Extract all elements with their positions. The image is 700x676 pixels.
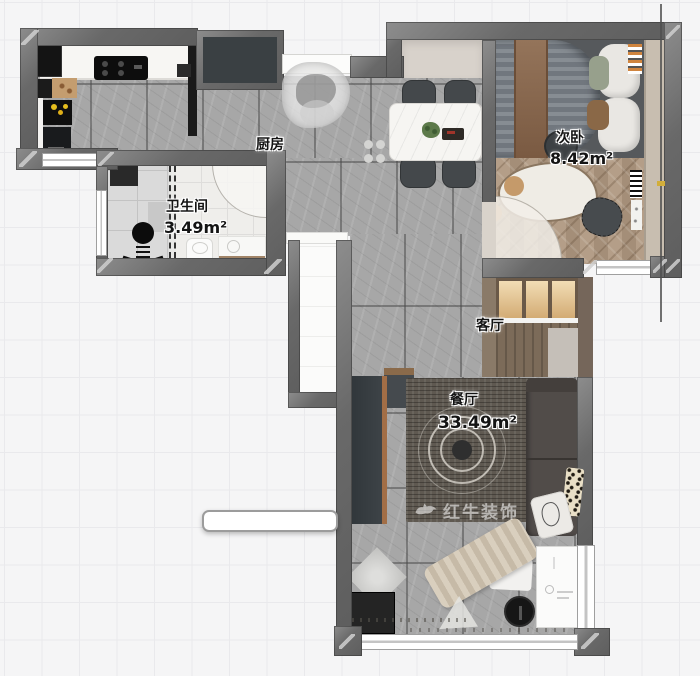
food-item [58,110,63,115]
floor-dot [376,154,385,163]
green-cushion [589,56,609,90]
living-cabinet-right-panel [578,277,593,377]
room-label-bedroom: 次卧 [556,127,584,147]
shoe-cabinet [203,37,277,83]
cutting-board [52,78,77,98]
tv-panel-wood-edge [382,376,387,524]
food-item [51,104,57,110]
floor-dot [364,154,373,163]
room-area-bathroom: 3.49m² [164,218,227,237]
room-label-dining: 餐厅 [450,389,478,409]
serving-tray [442,128,464,140]
wardrobe-deco [630,170,642,198]
kitchen-window [42,153,98,167]
curtain-inner-light [300,100,334,126]
wall [482,40,496,204]
sofa-cushion-seam [526,458,578,460]
balcony-window [358,634,578,650]
tan-stool [504,176,524,196]
floor-dot [364,140,373,149]
corner-hatch-icon [97,258,113,273]
watermark: 红牛装饰 [414,498,519,523]
corner-hatch-icon [21,30,39,45]
washing-machine [536,546,578,628]
burner-icon [102,70,108,76]
burner-icon [102,61,108,67]
corner-hatch-icon [98,152,114,166]
bull-logo-icon [414,500,438,521]
floor-dot [376,140,385,149]
cooktop [94,56,148,80]
sofa-armrest [526,378,578,392]
tv-panel [352,376,382,524]
corner-hatch-icon [581,633,599,649]
burner-icon [118,61,124,67]
bedroom-window [596,260,652,275]
floor-speckles [352,618,472,622]
bed-throw-blanket [514,40,548,158]
washer-detail [553,557,555,569]
washer-knob [545,585,554,594]
pillow-line-art [539,500,562,528]
entry-floor [402,40,482,78]
balcony-side-window [577,545,595,633]
corner-hatch-icon [264,259,282,274]
room-label-kitchen: 厨房 [256,134,284,154]
wall [577,377,593,547]
wall [336,240,352,636]
room-label-bathroom: 卫生间 [166,196,208,216]
brown-cushion [587,100,609,130]
toilet-bowl [192,242,208,254]
floor-plan-canvas: 厨房 卫生间 3.49m² 次卧 8.42m² 客厅 餐厅 33.49m² 红牛… [0,0,700,676]
counter-appliance [177,64,191,77]
washer-line [557,597,569,599]
burner-icon [134,65,142,69]
shaft-room-floor [298,244,338,396]
wall [288,240,300,396]
bedroom-door-threshold [482,202,496,260]
table-plant [422,122,440,138]
corner-hatch-icon [666,259,680,273]
floor-speckles [410,628,570,632]
wardrobe-deco [628,44,642,74]
hall-floor-corridor [350,234,482,380]
food-item [63,104,68,109]
corner-hatch-icon [19,151,37,167]
washer-line [557,591,573,593]
oven-range [42,100,72,125]
tray-food [447,131,455,134]
living-cabinet-gray-panel [548,328,578,377]
watermark-text: 红牛装饰 [443,498,519,523]
side-cabinet-wood-top [384,368,414,375]
wall [20,28,198,46]
sink-basin [227,240,240,253]
living-cabinet-lit-shelves [496,278,578,322]
wall [386,22,682,40]
exterior-shelf-bar [202,510,338,532]
bathroom-window [96,190,107,256]
wall [266,150,286,276]
room-area-bedroom: 8.42m² [550,149,613,168]
wall [20,28,38,154]
room-label-living: 客厅 [476,315,504,335]
wall [96,258,286,276]
corner-hatch-icon [666,25,680,39]
pouf-seam [519,606,522,620]
wall [664,22,682,278]
burner-icon [118,70,124,76]
room-area-dining: 33.49m² [438,413,517,433]
chair-seat [132,222,154,244]
balcony-pouf [504,596,535,627]
wardrobe-deco [631,200,642,230]
marker-yellow [657,181,665,186]
construction-line [660,4,662,322]
corner-hatch-icon [339,634,355,649]
wall [482,258,584,278]
corner-hatch-icon [583,260,597,274]
rug-circle-center [452,440,472,460]
